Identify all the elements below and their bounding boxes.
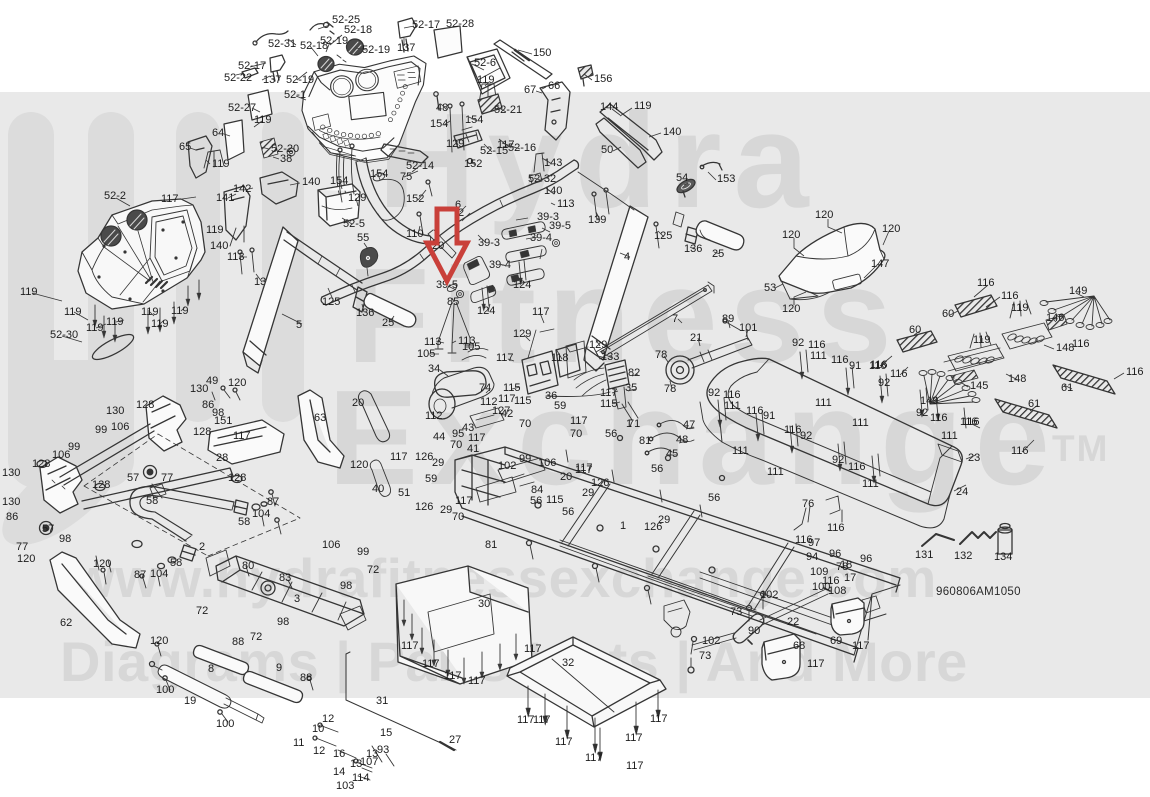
svg-text:45: 45 [666,448,678,460]
svg-text:128: 128 [92,479,110,491]
svg-text:52-16: 52-16 [508,142,536,154]
svg-text:64: 64 [212,127,224,139]
svg-text:145: 145 [970,380,988,392]
svg-text:116: 116 [831,354,849,366]
svg-text:99: 99 [357,546,369,558]
svg-text:128: 128 [228,472,246,484]
svg-text:39-4: 39-4 [489,259,511,271]
svg-text:116: 116 [784,424,802,436]
svg-text:11: 11 [293,737,304,749]
svg-text:117: 117 [422,658,440,670]
svg-text:115: 115 [514,395,532,407]
svg-text:106: 106 [111,421,129,433]
svg-text:56: 56 [530,495,542,507]
svg-text:17: 17 [844,572,856,584]
svg-text:115: 115 [546,494,564,506]
svg-text:117: 117 [532,306,550,318]
svg-text:117: 117 [575,462,593,474]
svg-text:51: 51 [398,487,410,499]
svg-text:151: 151 [214,415,232,427]
svg-text:128: 128 [136,399,154,411]
svg-text:117: 117 [625,732,643,744]
svg-text:94: 94 [806,551,818,563]
svg-text:98: 98 [277,616,289,628]
svg-text:73: 73 [730,606,742,618]
svg-text:100: 100 [156,684,174,696]
svg-text:22: 22 [787,616,799,628]
svg-text:52-2: 52-2 [104,190,126,202]
svg-text:81: 81 [639,435,651,447]
svg-text:92: 92 [792,337,804,349]
svg-text:156: 156 [594,73,612,85]
svg-text:117: 117 [852,640,870,652]
svg-text:72: 72 [367,564,379,576]
svg-text:111: 111 [815,397,832,409]
svg-text:136: 136 [356,307,374,319]
svg-text:112: 112 [425,410,443,422]
svg-text:18: 18 [840,559,852,571]
svg-text:149: 149 [1069,285,1087,297]
svg-text:120: 120 [350,459,368,471]
svg-text:134: 134 [994,551,1012,563]
svg-text:40: 40 [372,483,384,495]
svg-text:78: 78 [655,349,667,361]
svg-text:97: 97 [808,537,820,549]
svg-text:77: 77 [16,541,28,553]
svg-text:140: 140 [302,176,320,188]
svg-text:111: 111 [724,400,741,412]
svg-text:103: 103 [336,780,354,792]
svg-text:137: 137 [397,42,415,54]
svg-text:99: 99 [519,453,531,465]
svg-text:91: 91 [763,410,775,422]
svg-text:960806AM1050: 960806AM1050 [936,586,1021,598]
svg-text:42: 42 [501,408,513,420]
svg-text:130: 130 [190,383,208,395]
svg-text:102: 102 [498,460,516,472]
svg-text:117: 117 [650,713,668,725]
svg-text:25: 25 [712,248,724,260]
svg-text:98: 98 [59,533,71,545]
svg-text:100: 100 [216,718,234,730]
svg-text:87: 87 [267,496,279,508]
svg-text:70: 70 [452,511,464,523]
svg-text:52-19: 52-19 [320,35,348,47]
svg-text:1: 1 [620,520,626,532]
svg-text:7: 7 [672,313,678,325]
svg-text:3: 3 [294,593,300,605]
svg-text:120: 120 [150,635,168,647]
svg-text:44: 44 [433,431,445,443]
svg-text:91: 91 [849,360,861,372]
svg-text:88: 88 [300,672,312,684]
svg-text:34: 34 [428,363,440,375]
svg-text:85: 85 [447,296,459,308]
svg-text:41: 41 [467,443,479,455]
svg-text:117: 117 [555,736,573,748]
svg-text:21: 21 [690,332,702,344]
svg-text:150: 150 [533,47,551,59]
svg-text:8: 8 [208,663,214,675]
svg-text:119: 119 [20,286,38,298]
svg-text:55: 55 [357,232,369,244]
svg-text:119: 119 [141,306,159,318]
svg-text:120: 120 [17,553,35,565]
svg-text:117: 117 [626,760,644,772]
svg-text:130: 130 [2,467,20,479]
svg-text:67: 67 [524,84,536,96]
svg-text:12: 12 [313,745,325,757]
svg-text:148: 148 [1008,373,1026,385]
svg-text:81: 81 [485,539,497,551]
svg-text:126: 126 [415,451,433,463]
svg-text:117: 117 [524,643,542,655]
svg-text:59: 59 [554,400,566,412]
svg-text:92: 92 [708,387,720,399]
svg-text:52-18: 52-18 [344,24,372,36]
svg-text:117: 117 [517,714,535,726]
svg-text:130: 130 [106,405,124,417]
svg-text:117: 117 [233,430,251,442]
svg-text:116: 116 [1011,445,1029,457]
svg-text:95: 95 [452,428,464,440]
svg-text:66: 66 [548,80,560,92]
svg-text:27: 27 [449,734,461,746]
svg-text:92: 92 [832,454,844,466]
svg-text:52-6: 52-6 [474,57,496,69]
svg-text:100: 100 [812,581,830,593]
svg-text:90: 90 [748,625,760,637]
svg-text:102: 102 [760,589,778,601]
svg-text:88: 88 [232,636,244,648]
svg-text:117: 117 [468,675,486,687]
svg-text:117: 117 [161,193,179,205]
svg-text:116: 116 [1001,290,1019,302]
svg-text:106: 106 [538,457,556,469]
svg-text:116: 116 [1126,366,1144,378]
svg-text:104: 104 [150,568,168,580]
svg-text:126: 126 [415,501,433,513]
svg-text:120: 120 [93,558,111,570]
svg-text:61: 61 [1061,382,1073,394]
svg-text:69: 69 [830,635,842,647]
svg-text:89: 89 [722,313,734,325]
svg-text:119: 119 [86,322,104,334]
svg-text:80: 80 [242,560,254,572]
svg-text:119: 119 [634,100,652,112]
svg-text:19: 19 [184,695,196,707]
svg-text:47: 47 [683,419,695,431]
svg-text:96: 96 [860,553,872,565]
svg-text:74: 74 [479,382,491,394]
svg-text:129: 129 [513,328,531,340]
svg-text:50: 50 [601,144,613,156]
svg-text:116: 116 [746,405,764,417]
svg-text:124: 124 [513,279,531,291]
svg-text:140: 140 [663,126,681,138]
svg-text:131: 131 [915,549,933,561]
svg-text:70: 70 [450,439,462,451]
svg-text:52-19: 52-19 [286,74,314,86]
svg-text:119: 119 [171,305,189,317]
svg-text:52-17: 52-17 [238,60,266,72]
svg-text:5: 5 [296,319,302,331]
svg-text:38: 38 [280,153,292,165]
svg-text:16: 16 [333,748,345,760]
svg-text:72: 72 [196,605,208,617]
svg-text:52-19: 52-19 [362,44,390,56]
svg-text:58: 58 [170,557,182,569]
svg-text:152: 152 [406,193,424,205]
svg-text:1: 1 [626,418,632,430]
svg-text:128: 128 [193,426,211,438]
svg-text:116: 116 [930,412,948,424]
svg-text:148: 148 [1056,342,1074,354]
svg-text:140: 140 [210,240,228,252]
svg-text:77: 77 [161,472,173,484]
svg-text:86: 86 [6,511,18,523]
svg-text:56: 56 [605,428,617,440]
svg-text:114: 114 [352,772,370,784]
svg-text:130: 130 [2,496,20,508]
svg-text:129: 129 [589,339,607,351]
svg-text:54: 54 [676,172,688,184]
svg-text:20: 20 [352,397,364,409]
svg-text:82: 82 [628,367,640,379]
svg-text:111: 111 [941,430,958,442]
svg-text:120: 120 [782,229,800,241]
svg-text:58: 58 [146,495,158,507]
svg-text:92: 92 [800,430,812,442]
svg-text:78: 78 [664,383,676,395]
svg-text:141: 141 [216,192,234,204]
svg-text:70: 70 [570,428,582,440]
svg-text:52-22: 52-22 [224,72,252,84]
svg-text:92: 92 [916,407,928,419]
svg-text:117: 117 [585,752,603,764]
svg-text:104: 104 [252,508,270,520]
svg-text:52-15: 52-15 [480,145,508,157]
svg-text:139: 139 [588,214,606,226]
svg-text:117: 117 [498,393,516,405]
svg-text:120: 120 [815,209,833,221]
svg-text:87: 87 [134,569,146,581]
svg-text:124: 124 [477,305,495,317]
svg-text:111: 111 [852,417,869,429]
svg-text:117: 117 [807,658,825,670]
svg-text:28: 28 [216,452,228,464]
svg-text:117: 117 [496,352,514,364]
svg-text:52-21: 52-21 [494,104,522,116]
svg-text:111: 111 [732,445,749,457]
svg-text:111: 111 [862,478,879,490]
svg-text:9: 9 [276,662,282,674]
svg-text:35: 35 [625,382,637,394]
svg-text:14: 14 [333,766,345,778]
svg-text:29: 29 [440,504,452,516]
svg-text:31: 31 [376,695,388,707]
svg-text:154: 154 [330,175,348,187]
svg-text:128: 128 [32,458,50,470]
svg-text:23: 23 [968,452,980,464]
svg-text:143: 143 [544,157,562,169]
svg-text:118: 118 [551,352,569,364]
svg-text:111: 111 [767,466,784,478]
svg-text:52-17: 52-17 [412,19,440,31]
svg-text:119: 119 [254,114,272,126]
svg-text:117: 117 [390,451,408,463]
svg-text:56: 56 [651,463,663,475]
svg-text:48: 48 [436,102,448,114]
svg-text:48: 48 [676,434,688,446]
svg-text:29: 29 [582,487,594,499]
svg-text:29: 29 [432,457,444,469]
svg-text:52-5: 52-5 [343,218,365,230]
svg-text:68: 68 [793,640,805,652]
svg-text:39-5: 39-5 [549,220,571,232]
svg-text:117: 117 [444,670,462,682]
svg-text:119: 119 [64,306,82,318]
svg-text:108: 108 [828,585,846,597]
svg-text:TM: TM [1052,428,1109,469]
svg-text:106: 106 [52,449,70,461]
svg-text:117: 117 [570,415,588,427]
svg-text:62: 62 [60,617,72,629]
svg-text:59: 59 [425,473,437,485]
svg-text:117: 117 [455,495,473,507]
svg-text:119: 119 [206,224,224,236]
svg-text:63: 63 [314,412,326,424]
svg-text:110: 110 [406,228,424,240]
svg-text:120: 120 [882,223,900,235]
svg-text:58: 58 [238,516,250,528]
svg-text:109: 109 [810,566,828,578]
svg-text:132: 132 [954,550,972,562]
svg-text:146: 146 [1046,312,1064,324]
svg-text:52-27: 52-27 [228,102,256,114]
svg-text:116: 116 [848,461,866,473]
svg-text:120: 120 [228,377,246,389]
svg-text:76: 76 [802,498,814,510]
svg-text:115: 115 [600,398,618,410]
svg-text:92: 92 [878,377,890,389]
svg-text:70: 70 [519,418,531,430]
svg-text:32: 32 [562,657,574,669]
svg-text:116: 116 [870,359,888,371]
svg-text:93: 93 [377,744,389,756]
svg-text:99: 99 [95,424,107,436]
svg-text:15: 15 [380,727,392,739]
svg-text:53: 53 [764,282,776,294]
svg-text:98: 98 [340,580,352,592]
svg-text:57: 57 [127,472,139,484]
svg-text:107: 107 [360,756,378,768]
svg-text:117: 117 [401,640,419,652]
svg-text:65: 65 [179,141,191,153]
svg-text:24: 24 [956,486,968,498]
svg-text:113: 113 [557,198,575,210]
svg-text:52-1: 52-1 [284,89,306,101]
svg-text:75: 75 [400,171,412,183]
svg-text:57: 57 [42,523,54,535]
svg-text:73: 73 [699,650,711,662]
svg-text:149: 149 [920,395,938,407]
svg-text:126: 126 [644,521,662,533]
svg-text:106: 106 [322,539,340,551]
svg-text:116: 116 [1072,338,1090,350]
svg-text:119: 119 [151,318,169,330]
svg-text:72: 72 [250,631,262,643]
svg-text:125: 125 [322,296,340,308]
svg-text:83: 83 [279,572,291,584]
svg-text:119: 119 [212,158,230,170]
svg-text:153: 153 [717,173,735,185]
svg-text:117: 117 [533,714,551,726]
svg-text:111: 111 [810,350,827,362]
svg-text:137: 137 [263,74,281,86]
svg-text:30: 30 [478,598,490,610]
svg-text:119: 119 [477,74,495,86]
svg-text:101: 101 [739,322,757,334]
svg-text:10: 10 [312,723,324,735]
svg-text:120: 120 [782,303,800,315]
svg-text:129: 129 [446,138,464,150]
svg-text:2: 2 [199,541,205,553]
svg-text:102: 102 [702,635,720,647]
svg-text:56: 56 [562,506,574,518]
svg-text:119: 119 [106,316,124,328]
svg-text:116: 116 [827,522,845,534]
svg-text:52-28: 52-28 [446,18,474,30]
svg-text:56: 56 [708,492,720,504]
svg-text:52-31: 52-31 [268,38,296,50]
